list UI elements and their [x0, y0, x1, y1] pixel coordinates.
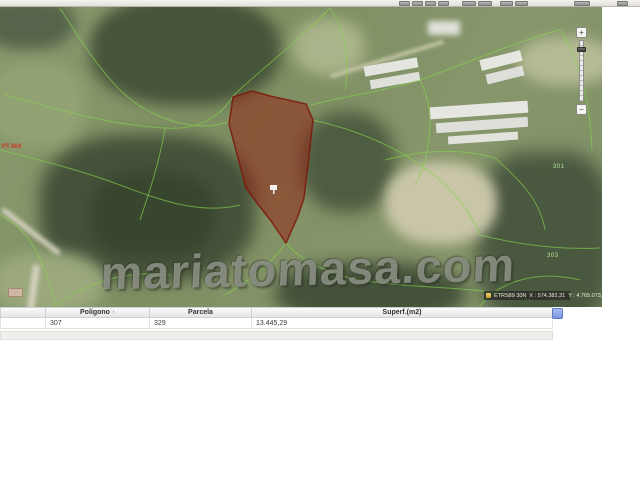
toolbar-icon[interactable] [425, 1, 436, 6]
table-footer-strip [0, 331, 553, 340]
toolbar-icon[interactable] [500, 1, 513, 6]
toolbar-group-measure [462, 1, 492, 6]
table-header-poligono[interactable]: Polígono ↑ [46, 307, 150, 318]
cell-blank [0, 318, 46, 329]
zoom-out-button[interactable]: − [576, 104, 587, 115]
toolbar-group-print [574, 1, 590, 6]
toolbar-icon[interactable] [462, 1, 476, 6]
cell-superf: 13.445,29 [252, 318, 553, 329]
table-header-poligono-label: Polígono [80, 309, 110, 316]
top-toolbar [0, 0, 640, 7]
zoom-slider-handle[interactable] [577, 47, 586, 52]
datum-label: ETRS89 30N [494, 293, 526, 299]
zoom-slider: + − [575, 27, 589, 117]
map-viewport[interactable]: PT-804 301 303 mariatomasa.com + − ETRS8… [0, 7, 602, 307]
coordinates-status-bar: ETRS89 30N X : 574.382,31 Y : 4.765.073,… [484, 291, 570, 300]
toolbar-icon[interactable] [574, 1, 590, 6]
y-coordinate: Y : 4.765.073,37 [568, 293, 602, 299]
sort-arrow-icon: ↑ [112, 310, 115, 316]
table-scroll-button[interactable] [552, 308, 563, 319]
toolbar-group-navigation [399, 1, 449, 6]
zoom-in-button[interactable]: + [576, 27, 587, 38]
toolbar-icon[interactable] [617, 1, 628, 6]
toolbar-group-help [617, 1, 628, 6]
datum-icon [486, 293, 491, 298]
table-row[interactable]: 307 329 13.445,29 [0, 318, 553, 329]
parcel-number-label: 301 [553, 164, 565, 170]
toolbar-icon[interactable] [399, 1, 410, 6]
app-window: PT-804 301 303 mariatomasa.com + − ETRS8… [0, 0, 640, 480]
toolbar-icon[interactable] [515, 1, 528, 6]
results-table: Polígono ↑ Parcela Superf.(m2) 307 329 1… [0, 307, 553, 329]
toolbar-icon[interactable] [438, 1, 449, 6]
toolbar-group-selection [500, 1, 528, 6]
table-header-parcela[interactable]: Parcela [150, 307, 252, 318]
selected-parcel-polygon[interactable] [229, 91, 313, 243]
cell-parcela: 329 [150, 318, 252, 329]
table-header-blank [0, 307, 46, 318]
cell-poligono: 307 [46, 318, 150, 329]
table-header-row: Polígono ↑ Parcela Superf.(m2) [0, 307, 553, 318]
table-header-superf[interactable]: Superf.(m2) [252, 307, 553, 318]
road-label: PT-804 [2, 144, 21, 150]
x-coordinate: X : 574.382,31 [529, 293, 565, 299]
toolbar-icon[interactable] [478, 1, 492, 6]
toolbar-icon[interactable] [412, 1, 423, 6]
